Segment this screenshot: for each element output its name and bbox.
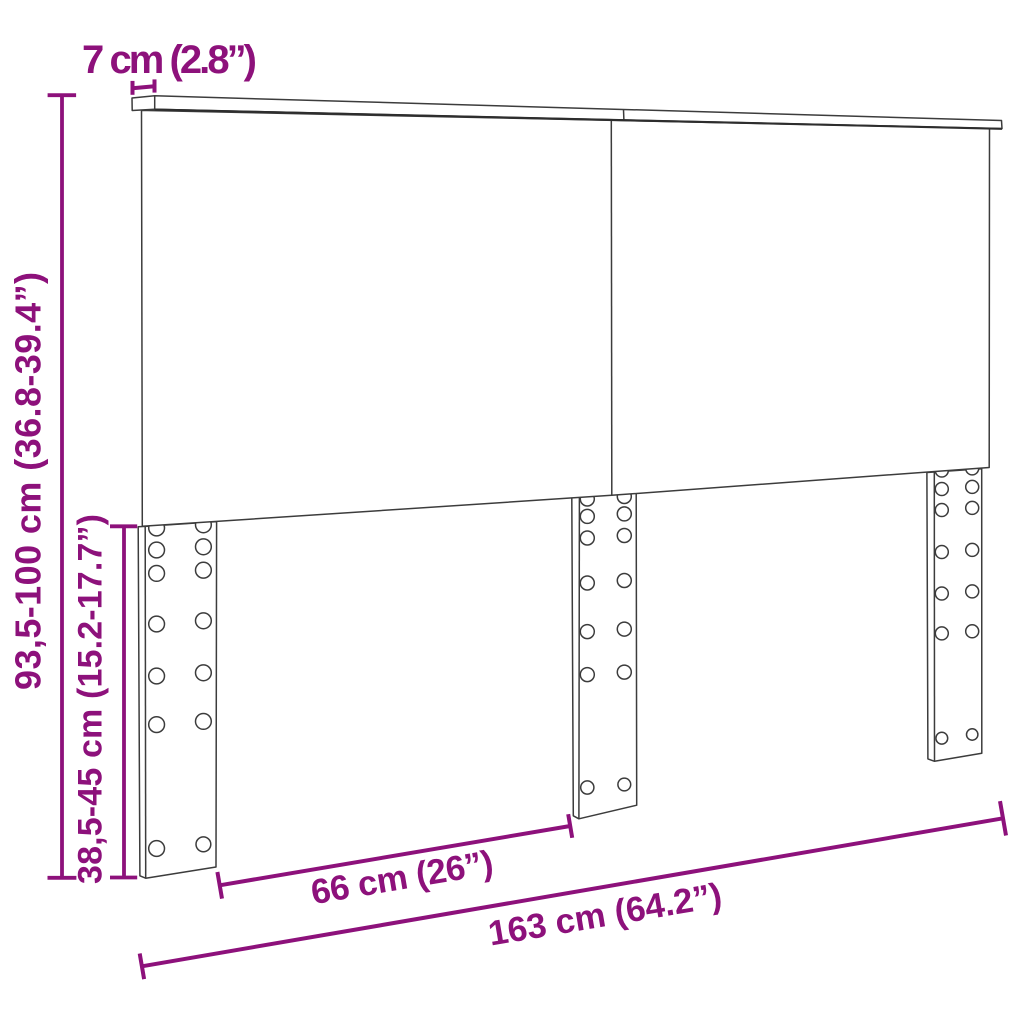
svg-text:38,5-45 cm (15.2-17.7”): 38,5-45 cm (15.2-17.7”) bbox=[72, 514, 110, 884]
svg-text:7 cm (2.8”): 7 cm (2.8”) bbox=[82, 38, 257, 82]
svg-text:93,5-100 cm (36.8-39.4”): 93,5-100 cm (36.8-39.4”) bbox=[8, 272, 49, 690]
